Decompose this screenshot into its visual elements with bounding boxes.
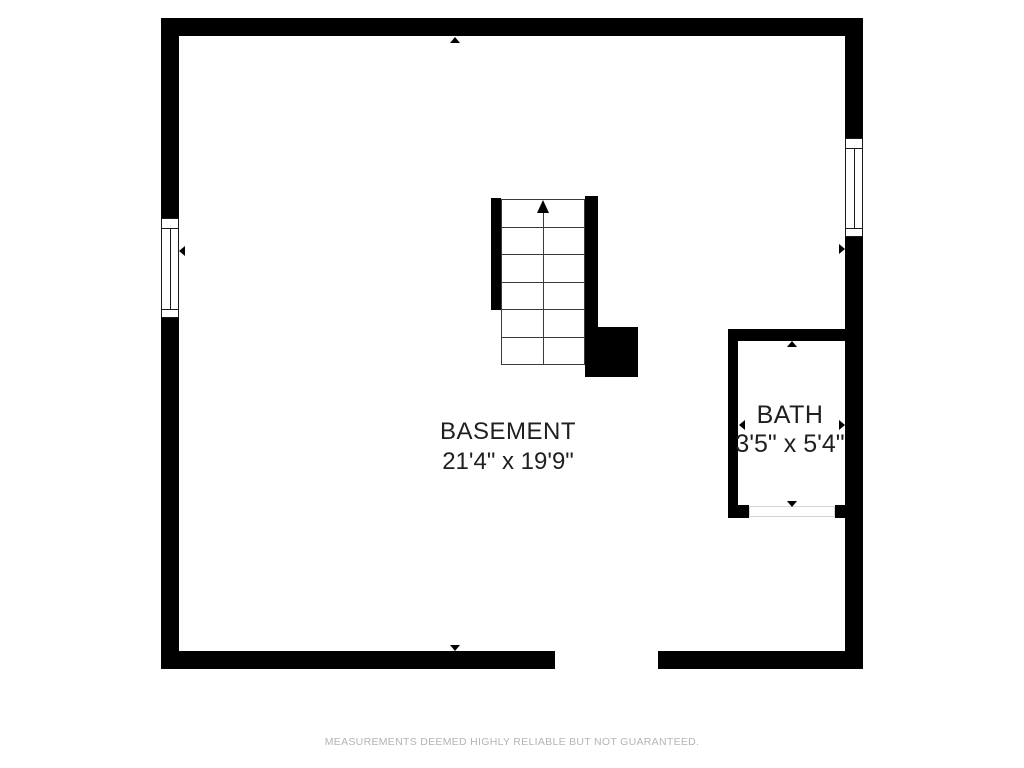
stair-landing-block: [585, 327, 638, 377]
right-window: [845, 138, 863, 237]
bath-bottom-wall-left: [728, 505, 749, 518]
top-wall: [161, 18, 863, 36]
left-wall-lower: [161, 318, 179, 669]
right-window-marker-icon: [839, 244, 845, 254]
right-wall-upper: [845, 18, 863, 138]
window-frame-line: [846, 228, 862, 229]
basement-label-group: BASEMENT 21'4" x 19'9": [440, 417, 576, 477]
bottom-wall-right: [658, 651, 863, 669]
left-window: [161, 218, 179, 318]
top-wall-marker-icon: [450, 37, 460, 43]
floorplan-canvas: BASEMENT 21'4" x 19'9" BATH 3'5" x 5'4" …: [0, 0, 1024, 768]
window-frame-line: [162, 309, 178, 310]
stair-direction-line: [543, 213, 544, 364]
stair-left-wall: [491, 198, 501, 310]
bath-door-opening: [749, 506, 835, 517]
bath-label-group: BATH 3'5" x 5'4": [735, 401, 844, 459]
bath-top-wall: [728, 329, 845, 341]
measurements-disclaimer: MEASUREMENTS DEEMED HIGHLY RELIABLE BUT …: [325, 736, 700, 748]
bottom-wall-left: [161, 651, 555, 669]
stair-up-arrow-icon: [537, 200, 549, 213]
left-wall-upper: [161, 18, 179, 218]
left-window-marker-icon: [179, 246, 185, 256]
bottom-wall-marker-icon: [450, 645, 460, 651]
bath-bottom-wall-right: [835, 505, 845, 518]
window-pane-line: [170, 228, 171, 309]
basement-room-name: BASEMENT: [440, 417, 576, 447]
bath-top-marker-icon: [787, 341, 797, 347]
bath-room-dimensions: 3'5" x 5'4": [735, 430, 844, 459]
window-pane-line: [854, 148, 855, 228]
right-wall-lower: [845, 237, 863, 669]
basement-room-dimensions: 21'4" x 19'9": [440, 447, 576, 477]
bath-room-name: BATH: [735, 401, 844, 430]
bath-door-marker-icon: [787, 501, 797, 507]
